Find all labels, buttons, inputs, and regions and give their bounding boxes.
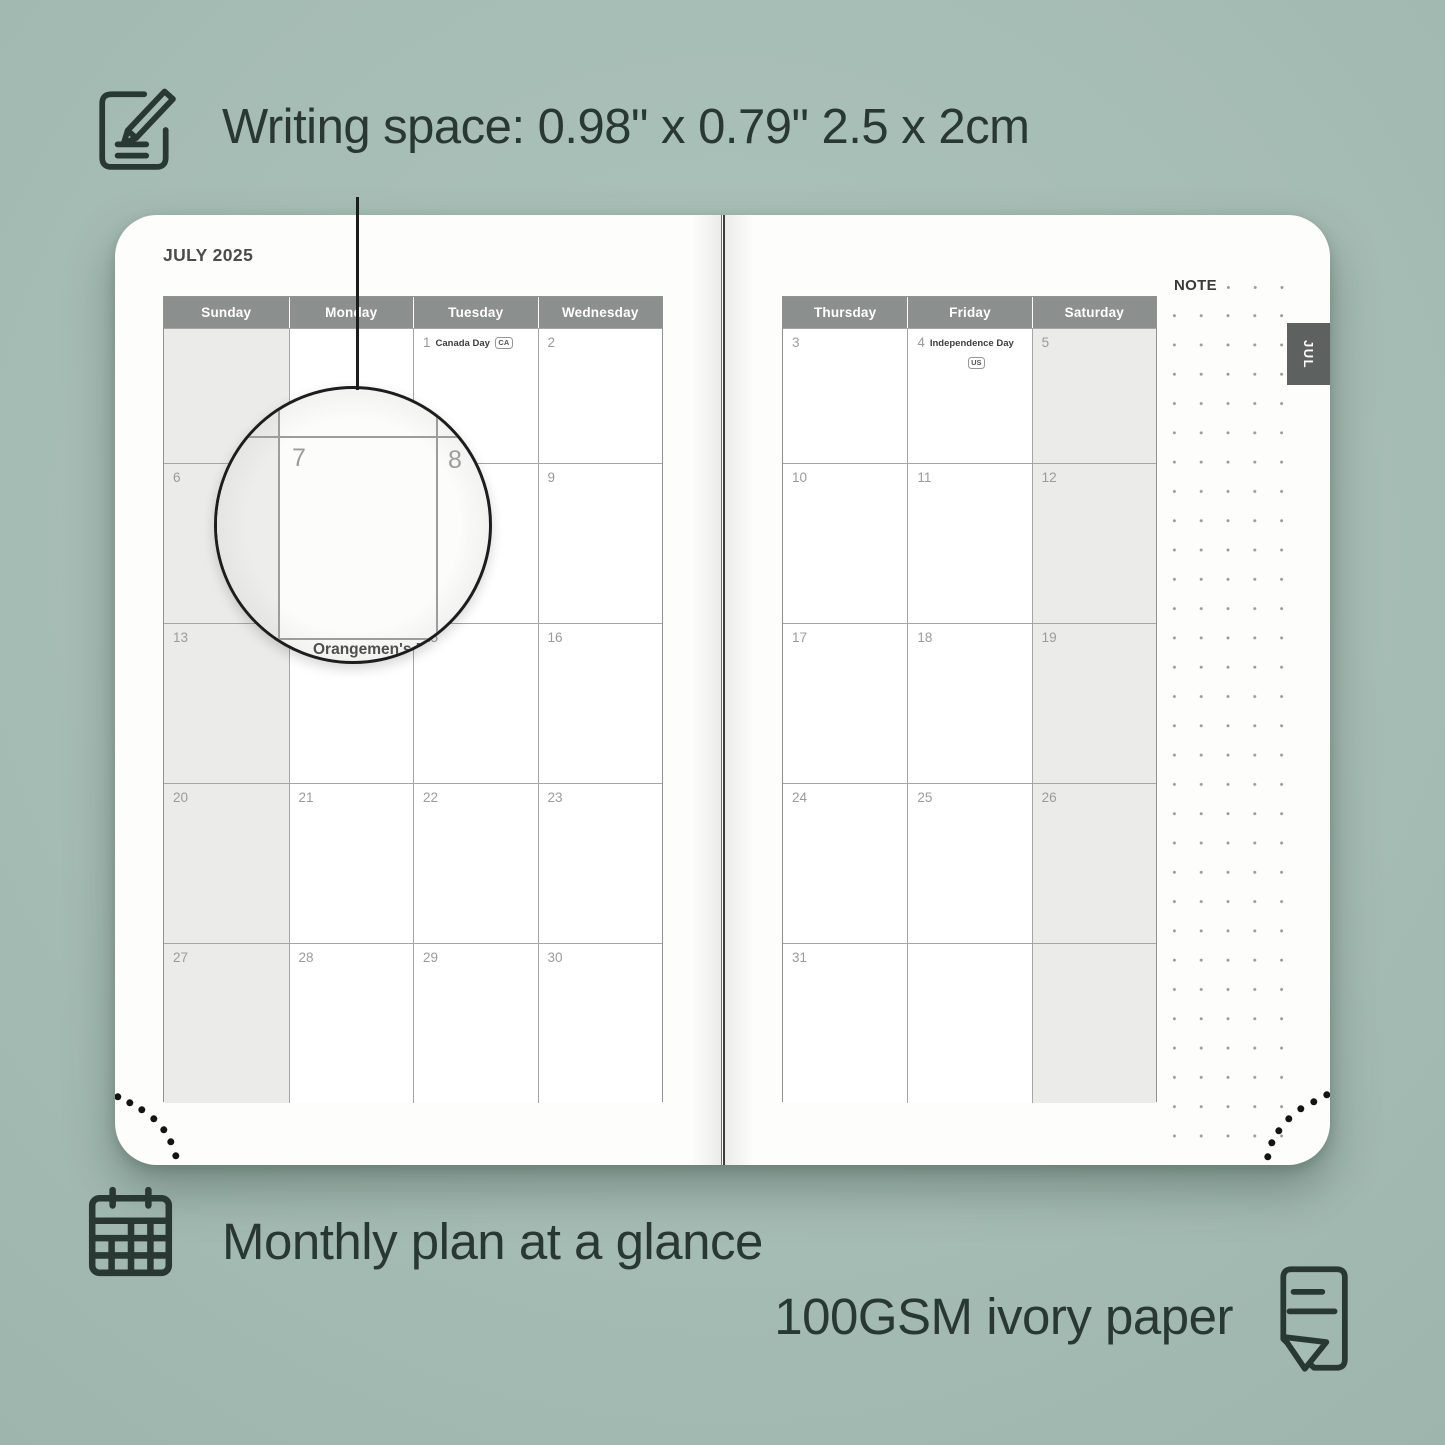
- day-number: 11: [917, 470, 931, 486]
- calendar-cell: 23: [538, 783, 663, 943]
- calendar-cell: 28: [289, 943, 414, 1103]
- calendar-cell: 29: [413, 943, 538, 1103]
- day-number: 19: [1042, 630, 1057, 646]
- day-number: 3: [792, 335, 800, 351]
- stitch-dot: [167, 1138, 174, 1145]
- note-dot-grid: [1161, 301, 1296, 1151]
- calendar-cell: 18: [907, 623, 1031, 783]
- day-number: 13: [173, 630, 188, 646]
- weekday-header: Sunday: [164, 297, 289, 328]
- calendar-cell: 11: [907, 463, 1031, 623]
- holiday-label: Independence Day: [930, 338, 1014, 349]
- right-calendar: ThursdayFridaySaturday34Independence Day…: [782, 296, 1157, 1102]
- calendar-cell: 16: [538, 623, 663, 783]
- calendar-cell: 4Independence DayUS: [907, 328, 1031, 463]
- planner-product-image: Writing space: 0.98" x 0.79" 2.5 x 2cm J…: [0, 0, 1445, 1445]
- calendar-cell: 3: [783, 328, 907, 463]
- month-tab-label: JUL: [1301, 339, 1316, 368]
- planner-spread: JULY 2025 SundayMondayTuesdayWednesday1C…: [115, 215, 1330, 1165]
- paper-sheet-icon: [1271, 1265, 1351, 1372]
- calendar-cell: 17: [783, 623, 907, 783]
- note-label: NOTE: [1174, 277, 1217, 294]
- day-number: 5: [1042, 335, 1050, 351]
- spine-line: [721, 215, 722, 1165]
- note-pencil-icon: [93, 83, 179, 173]
- calendar-cell: 19: [1032, 623, 1156, 783]
- stitch-dot: [1297, 1105, 1304, 1112]
- paper-text: 100GSM ivory paper: [774, 1287, 1233, 1346]
- weekday-header: Thursday: [783, 297, 907, 328]
- day-number: 17: [792, 630, 807, 646]
- lens-vignette: [217, 389, 489, 661]
- day-number: 4: [917, 335, 925, 351]
- calendar-cell: 5: [1032, 328, 1156, 463]
- calendar-cell: 24: [783, 783, 907, 943]
- calendar-grid-icon: [82, 1186, 179, 1281]
- calendar-cell: 21: [289, 783, 414, 943]
- weekday-header: Monday: [289, 297, 414, 328]
- stitch-dot: [172, 1152, 179, 1159]
- day-number: 30: [548, 950, 563, 966]
- weekday-header: Saturday: [1032, 297, 1156, 328]
- day-number: 12: [1042, 470, 1057, 486]
- weekday-header: Tuesday: [413, 297, 538, 328]
- month-title: JULY 2025: [163, 245, 253, 266]
- stitch-dot: [126, 1099, 133, 1106]
- day-number: 18: [917, 630, 932, 646]
- stitch-dot: [1264, 1153, 1271, 1160]
- day-number: 21: [299, 790, 314, 806]
- stitch-dot: [160, 1126, 167, 1133]
- calendar-cell: 20: [164, 783, 289, 943]
- calendar-cell: 27: [164, 943, 289, 1103]
- day-number: 28: [299, 950, 314, 966]
- calendar-cell: 22: [413, 783, 538, 943]
- weekday-header: Wednesday: [538, 297, 663, 328]
- day-number: 29: [423, 950, 438, 966]
- day-number: 9: [548, 470, 556, 486]
- stitch-dot: [115, 1093, 122, 1100]
- day-number: 22: [423, 790, 438, 806]
- note-dot-grid: [1215, 273, 1296, 302]
- writing-space-text: Writing space: 0.98" x 0.79" 2.5 x 2cm: [222, 99, 1029, 155]
- calendar-cell: 31: [783, 943, 907, 1103]
- weekday-header: Friday: [907, 297, 1031, 328]
- stitch-dot: [150, 1115, 157, 1122]
- stitch-dot: [1323, 1091, 1330, 1098]
- day-number: 24: [792, 790, 807, 806]
- calendar-cell: 9: [538, 463, 663, 623]
- spine-shadow: [724, 215, 754, 1165]
- day-number: 23: [548, 790, 563, 806]
- day-number: 16: [548, 630, 563, 646]
- month-tab: JUL: [1287, 323, 1330, 385]
- callout-line: [356, 197, 359, 390]
- magnifier-lens: 7 8 Orangemen's Day: [214, 386, 492, 664]
- holiday-country-badge: US: [968, 357, 985, 370]
- calendar-cell: 2: [538, 328, 663, 463]
- day-number: 10: [792, 470, 807, 486]
- calendar-cell: [907, 943, 1031, 1103]
- calendar-cell: [1032, 943, 1156, 1103]
- calendar-cell: 25: [907, 783, 1031, 943]
- calendar-cell: 12: [1032, 463, 1156, 623]
- calendar-cell: 10: [783, 463, 907, 623]
- stitch-dot: [1310, 1098, 1317, 1105]
- stitch-dot: [138, 1106, 145, 1113]
- day-number: 31: [792, 950, 807, 966]
- day-number: 6: [173, 470, 181, 486]
- day-number: 26: [1042, 790, 1057, 806]
- day-number: 25: [917, 790, 932, 806]
- spine-line: [723, 215, 725, 1165]
- day-number: 1: [423, 335, 431, 351]
- day-number: 20: [173, 790, 188, 806]
- calendar-cell: 26: [1032, 783, 1156, 943]
- day-number: 2: [548, 335, 556, 351]
- monthly-plan-text: Monthly plan at a glance: [222, 1212, 763, 1271]
- spine-shadow: [691, 215, 721, 1165]
- calendar-cell: 30: [538, 943, 663, 1103]
- day-number: 27: [173, 950, 188, 966]
- holiday-country-badge: CA: [495, 337, 513, 350]
- holiday-label: Canada Day: [436, 338, 490, 349]
